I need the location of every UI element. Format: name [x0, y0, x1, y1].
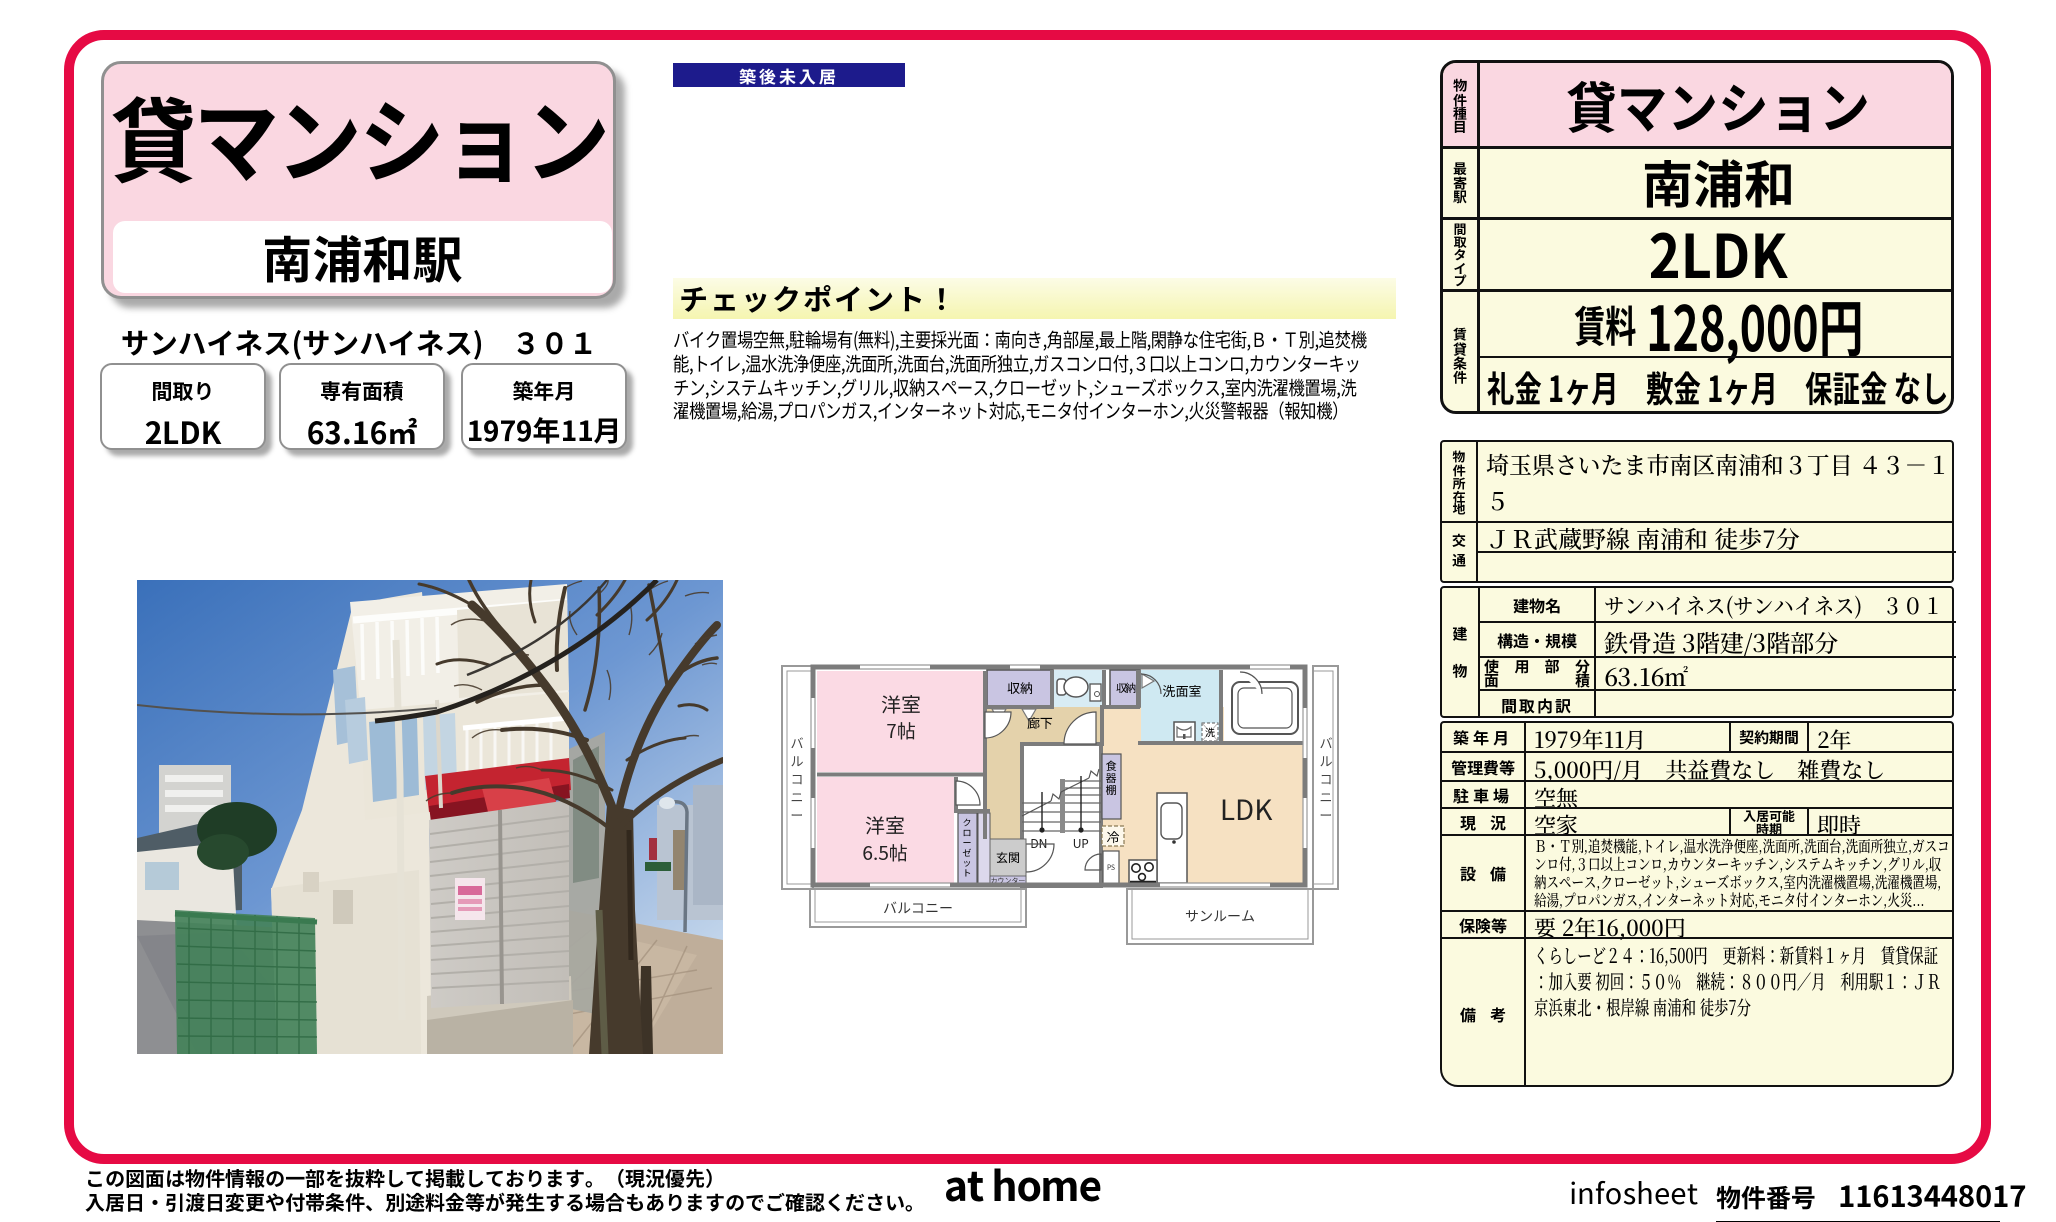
- svg-text:ト: ト: [962, 866, 971, 879]
- svg-text:バ: バ: [1319, 733, 1332, 752]
- svg-text:ニ: ニ: [790, 787, 803, 806]
- svg-text:サンルーム: サンルーム: [1185, 906, 1255, 926]
- svg-text:洋室: 洋室: [865, 810, 905, 839]
- svg-text:UP: UP: [1073, 835, 1089, 852]
- svg-text:棚: 棚: [1106, 782, 1117, 798]
- svg-text:バ: バ: [790, 733, 803, 752]
- svg-text:冷: 冷: [1106, 827, 1119, 846]
- svg-text:ー: ー: [1319, 805, 1332, 824]
- svg-text:バルコニー: バルコニー: [883, 898, 953, 918]
- svg-text:玄関: 玄関: [996, 849, 1020, 866]
- svg-text:収納: 収納: [1007, 678, 1033, 697]
- svg-text:コ: コ: [790, 769, 803, 788]
- svg-text:廊下: 廊下: [1027, 713, 1053, 732]
- svg-text:収納: 収納: [1116, 680, 1136, 696]
- svg-text:ー: ー: [790, 805, 803, 824]
- svg-text:7帖: 7帖: [886, 717, 916, 744]
- svg-text:洗: 洗: [1205, 724, 1215, 739]
- svg-text:洋室: 洋室: [881, 689, 921, 718]
- svg-text:ル: ル: [790, 751, 803, 770]
- svg-text:ル: ル: [1319, 751, 1332, 770]
- svg-text:PS: PS: [1107, 863, 1116, 873]
- svg-text:洗面室: 洗面室: [1162, 681, 1201, 700]
- svg-text:ニ: ニ: [1319, 787, 1332, 806]
- svg-text:LDK: LDK: [1220, 789, 1273, 829]
- svg-text:コ: コ: [1319, 769, 1332, 788]
- svg-text:6.5帖: 6.5帖: [862, 839, 907, 866]
